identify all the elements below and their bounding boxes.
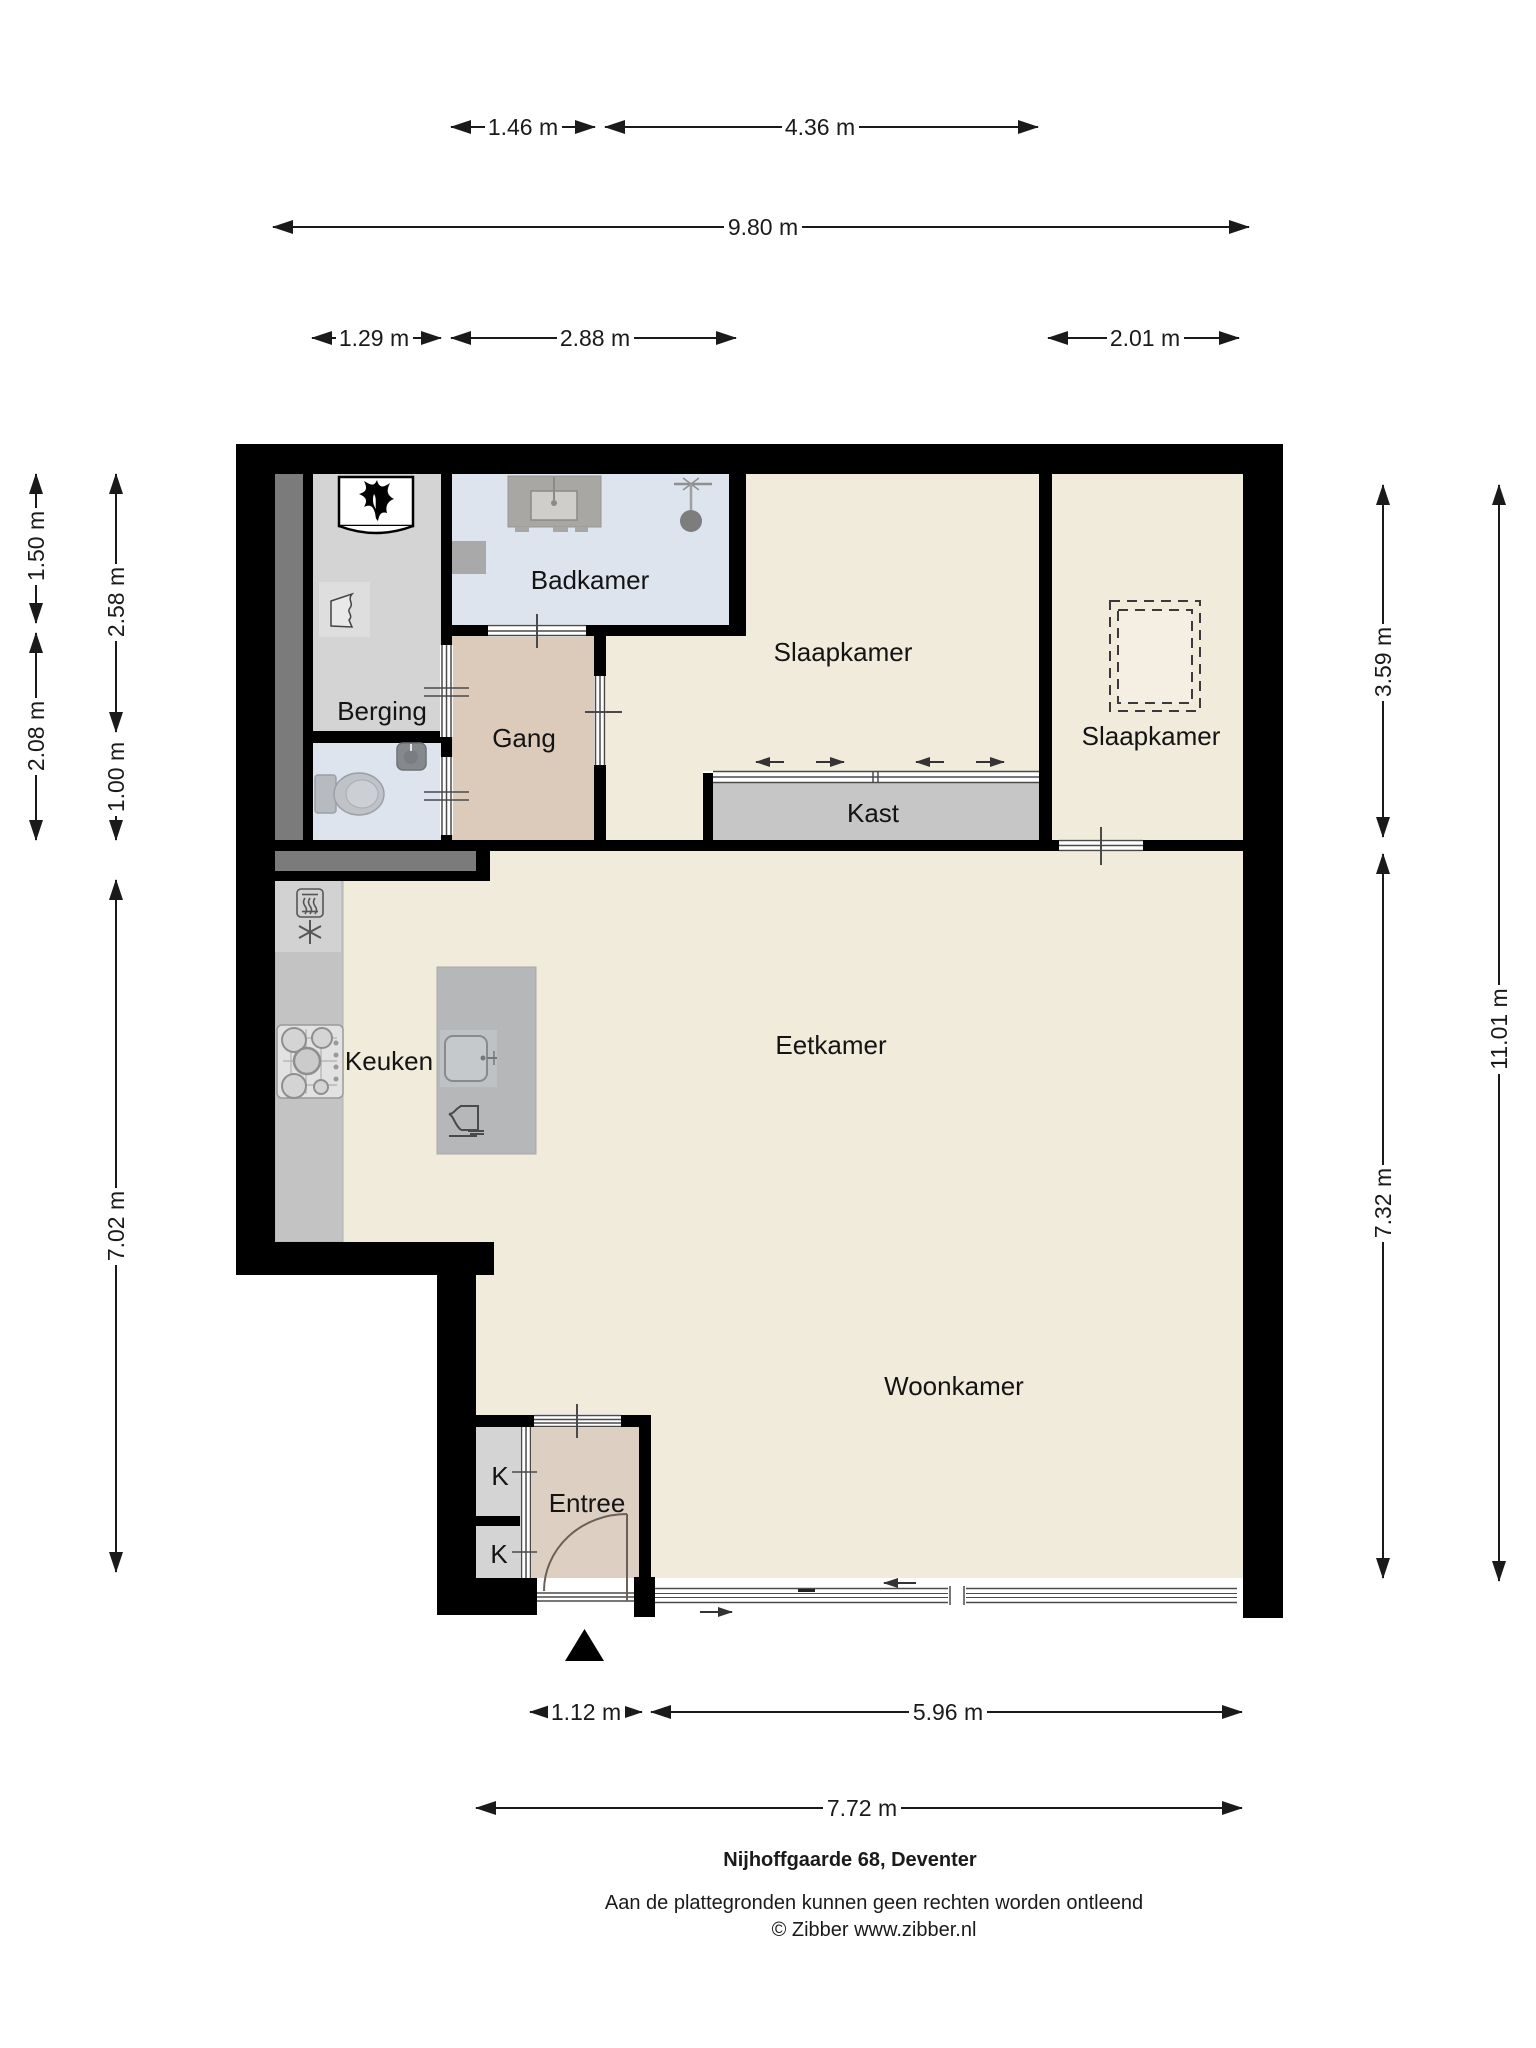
svg-text:Aan de plattegronden kunnen ge: Aan de plattegronden kunnen geen rechten…: [605, 1892, 1143, 1914]
svg-text:Slaapkamer: Slaapkamer: [1082, 721, 1221, 751]
svg-text:1.46 m: 1.46 m: [488, 114, 558, 140]
svg-text:11.01 m: 11.01 m: [1486, 988, 1512, 1069]
svg-text:Berging: Berging: [337, 696, 427, 726]
svg-text:Woonkamer: Woonkamer: [884, 1371, 1024, 1401]
svg-text:K: K: [491, 1461, 509, 1491]
svg-text:Badkamer: Badkamer: [531, 565, 650, 595]
svg-text:1.12 m: 1.12 m: [551, 1699, 621, 1725]
svg-text:K: K: [490, 1539, 508, 1569]
svg-text:Entree: Entree: [549, 1488, 626, 1518]
svg-text:Slaapkamer: Slaapkamer: [774, 637, 913, 667]
svg-text:1.50 m: 1.50 m: [23, 511, 49, 581]
svg-text:Gang: Gang: [492, 723, 556, 753]
svg-text:4.36 m: 4.36 m: [785, 114, 855, 140]
svg-text:© Zibber www.zibber.nl: © Zibber www.zibber.nl: [772, 1919, 977, 1941]
svg-text:2.01 m: 2.01 m: [1110, 325, 1180, 351]
svg-text:7.72 m: 7.72 m: [827, 1795, 897, 1821]
svg-text:Eetkamer: Eetkamer: [775, 1030, 887, 1060]
svg-text:1.00 m: 1.00 m: [103, 742, 129, 812]
svg-text:1.29 m: 1.29 m: [339, 325, 409, 351]
svg-text:9.80 m: 9.80 m: [728, 214, 798, 240]
svg-text:2.08 m: 2.08 m: [23, 701, 49, 771]
svg-text:Nijhoffgaarde 68, Deventer: Nijhoffgaarde 68, Deventer: [723, 1849, 977, 1871]
svg-text:7.02 m: 7.02 m: [103, 1191, 129, 1261]
svg-text:Kast: Kast: [847, 798, 900, 828]
svg-text:Keuken: Keuken: [345, 1046, 433, 1076]
svg-text:7.32 m: 7.32 m: [1370, 1168, 1396, 1238]
svg-text:3.59 m: 3.59 m: [1370, 627, 1396, 697]
svg-text:5.96 m: 5.96 m: [913, 1699, 983, 1725]
svg-text:2.88 m: 2.88 m: [560, 325, 630, 351]
svg-text:2.58 m: 2.58 m: [103, 567, 129, 637]
